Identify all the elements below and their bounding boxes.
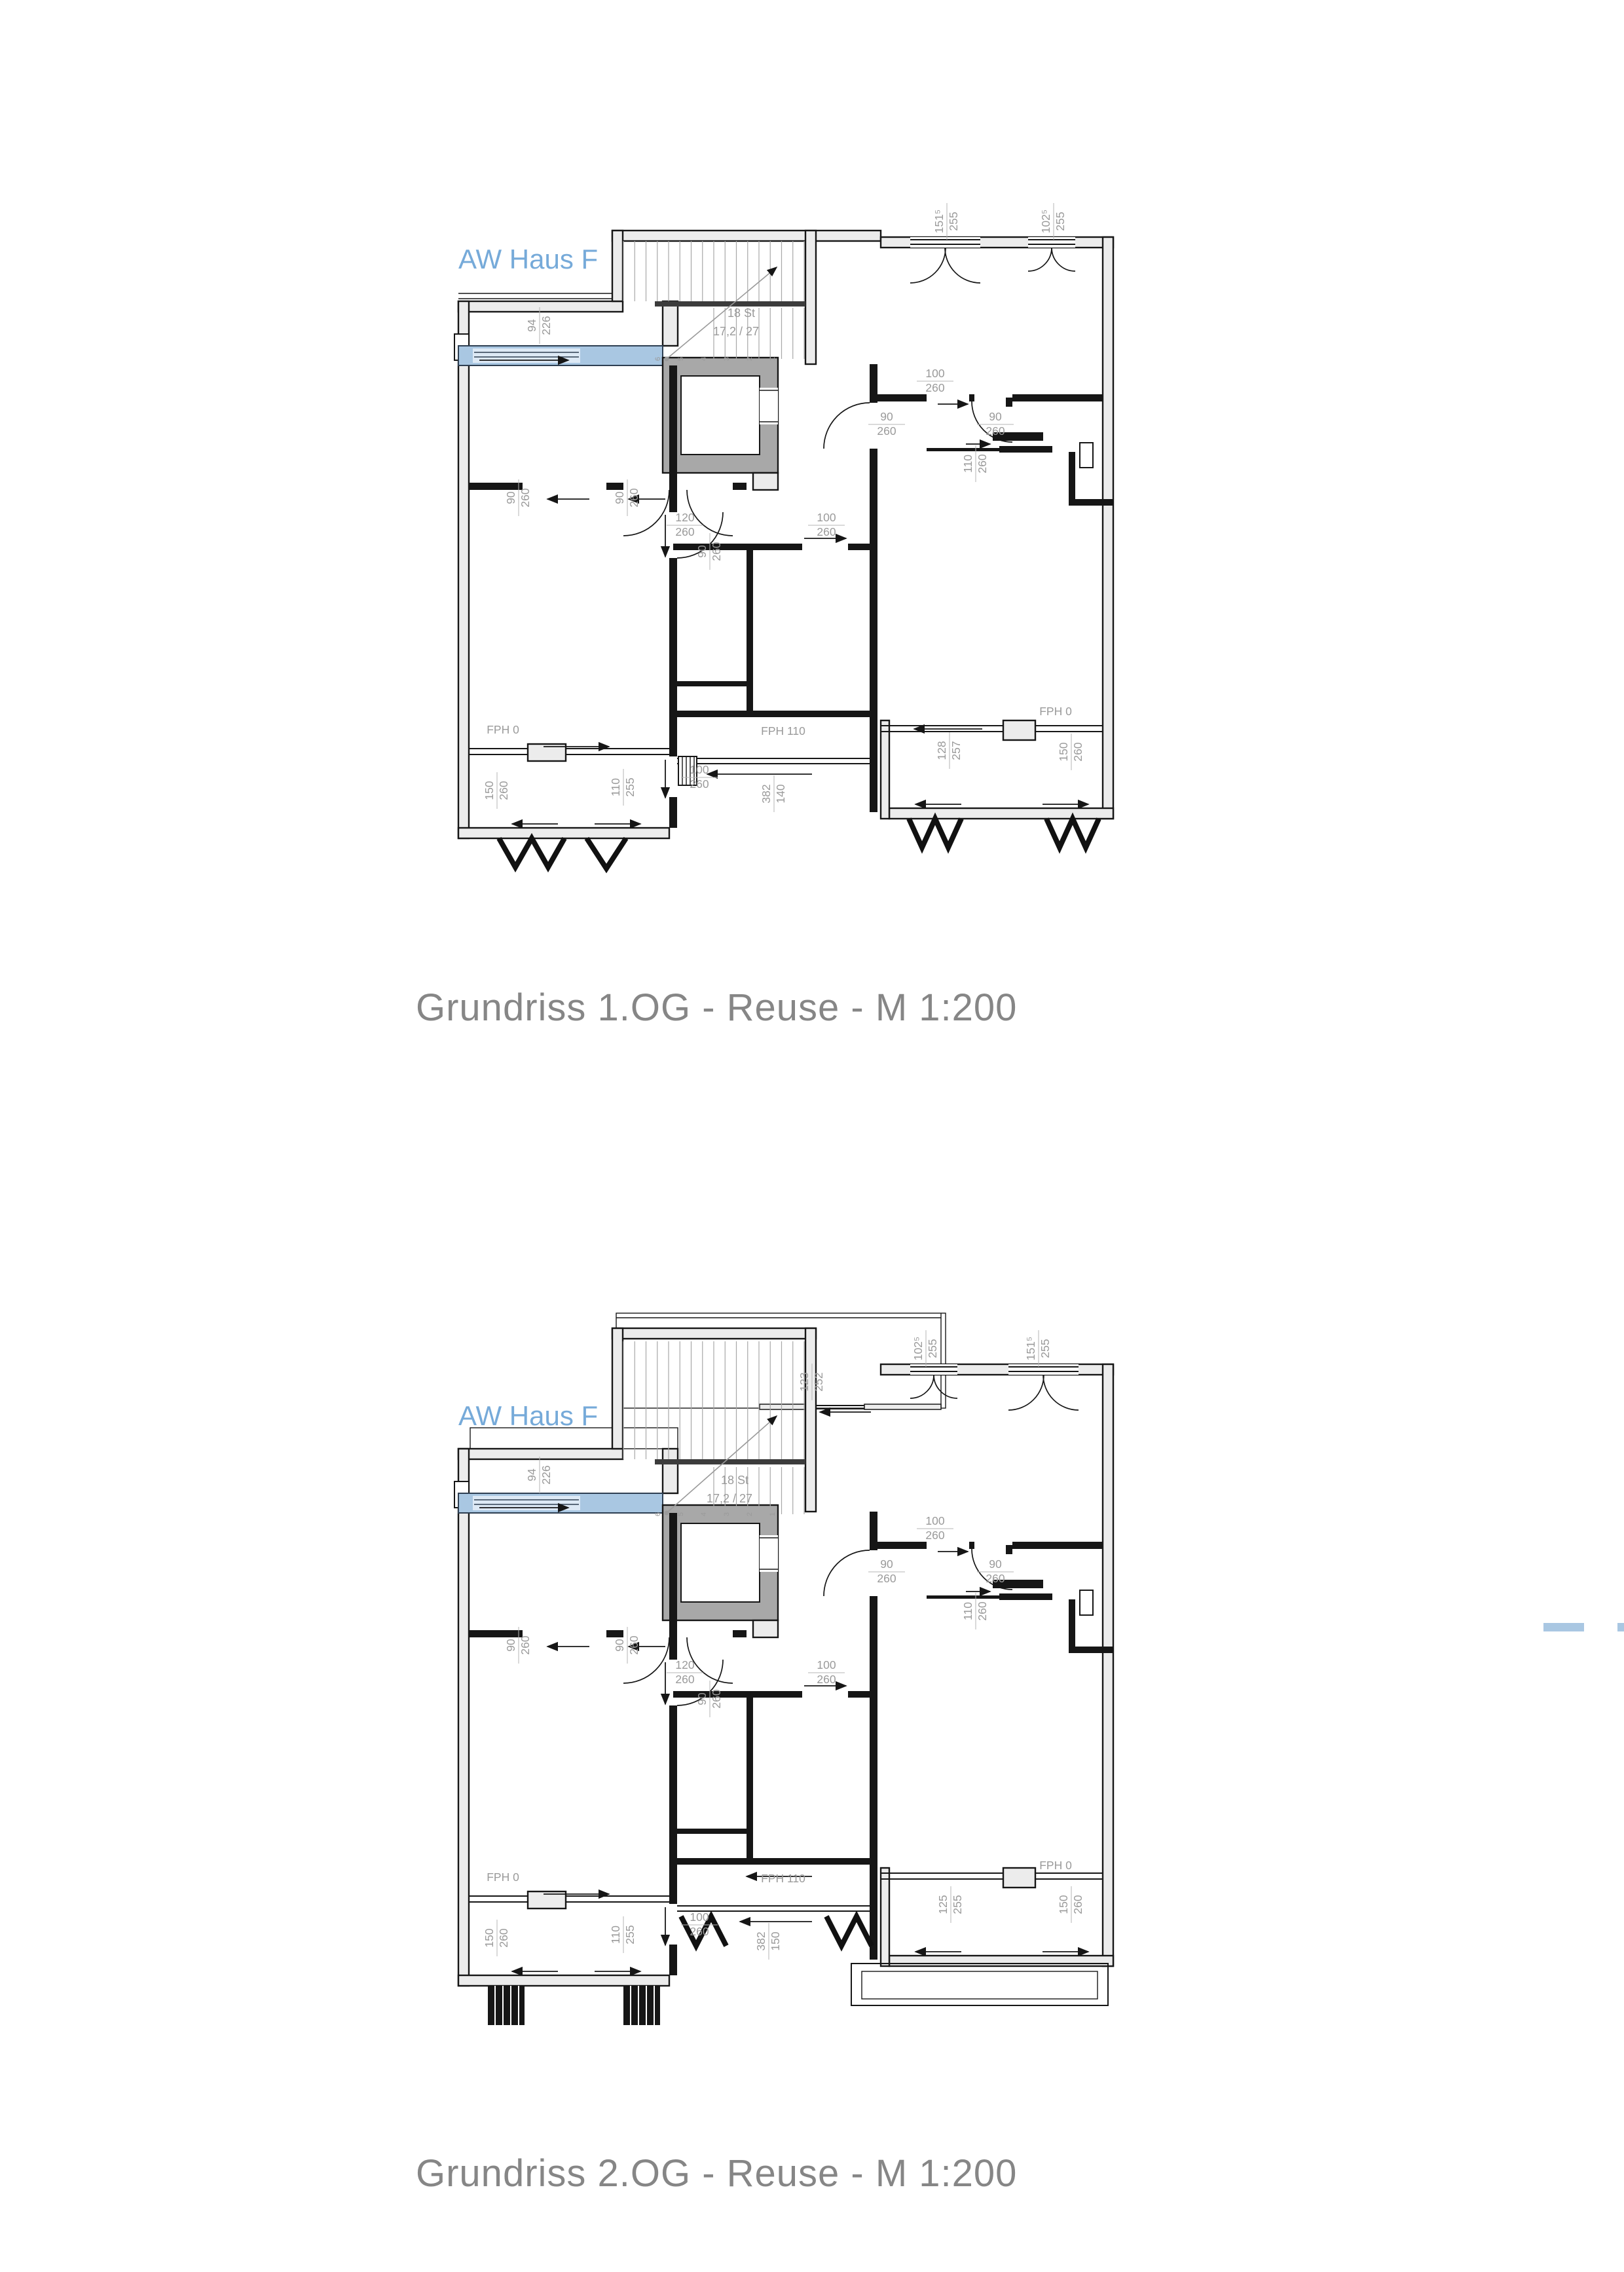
svg-text:FPH 0: FPH 0 xyxy=(1039,705,1072,718)
svg-text:255: 255 xyxy=(951,1895,964,1914)
direction-arrows xyxy=(512,1552,1088,1971)
svg-text:260: 260 xyxy=(627,1635,640,1654)
svg-text:255: 255 xyxy=(1054,212,1067,231)
svg-text:382: 382 xyxy=(760,784,773,803)
dim-label: 120260 xyxy=(667,511,703,538)
dim-label: 18 St xyxy=(721,1474,748,1487)
elevator-core xyxy=(663,1505,778,1637)
dim-label: FPH 110 xyxy=(761,1872,805,1885)
svg-text:17,2 / 27: 17,2 / 27 xyxy=(713,325,759,338)
stair-treads xyxy=(623,241,805,359)
svg-text:FPH 110: FPH 110 xyxy=(761,724,805,737)
svg-text:260: 260 xyxy=(497,781,510,800)
svg-text:100: 100 xyxy=(690,1910,709,1924)
highlight-wall xyxy=(458,1493,663,1513)
svg-text:94: 94 xyxy=(525,319,538,332)
staircase xyxy=(623,1341,805,1516)
svg-text:5: 5 xyxy=(677,357,685,361)
tread-number: 3 xyxy=(723,357,731,361)
dim-label: 151⁵255 xyxy=(932,203,960,240)
tread-number: 1 xyxy=(769,1512,777,1516)
page-edge-marker xyxy=(1543,1623,1584,1631)
dim-label: 150260 xyxy=(1057,1886,1084,1923)
highlight-wall xyxy=(458,346,663,365)
svg-text:100: 100 xyxy=(925,367,944,380)
svg-text:252: 252 xyxy=(812,1372,825,1391)
floorplan-2og: 123252942269026090260150260110255FPH 012… xyxy=(432,1284,1166,2070)
svg-text:100: 100 xyxy=(817,511,836,524)
svg-text:226: 226 xyxy=(540,316,553,335)
tread-number: 5 xyxy=(677,357,685,361)
tread-number: 3 xyxy=(723,1512,731,1516)
svg-text:2: 2 xyxy=(746,1512,754,1516)
svg-text:94: 94 xyxy=(525,1468,538,1481)
svg-text:255: 255 xyxy=(623,1925,637,1944)
dim-label: 90260 xyxy=(695,533,723,570)
balcony xyxy=(851,1964,1108,2005)
svg-text:260: 260 xyxy=(817,525,836,538)
tread-number: 4 xyxy=(700,357,708,361)
windows xyxy=(469,1364,1103,1911)
dim-label: 110255 xyxy=(609,1916,637,1953)
svg-text:150: 150 xyxy=(1057,742,1070,761)
tread-number: 2 xyxy=(746,357,754,361)
page-edge-marker xyxy=(1617,1623,1624,1631)
dim-label: FPH 110 xyxy=(761,724,805,737)
staircase xyxy=(623,241,805,362)
svg-text:90: 90 xyxy=(989,410,1002,423)
svg-text:17,2 / 27: 17,2 / 27 xyxy=(707,1492,752,1505)
svg-text:4: 4 xyxy=(700,1512,708,1516)
svg-text:110: 110 xyxy=(961,1602,974,1620)
svg-text:260: 260 xyxy=(519,1635,532,1654)
dim-label: 100260 xyxy=(917,1514,953,1542)
dim-label: FPH 0 xyxy=(1039,1859,1072,1872)
svg-text:120: 120 xyxy=(675,1658,694,1671)
svg-text:90: 90 xyxy=(880,410,893,423)
svg-text:18 St: 18 St xyxy=(728,307,755,320)
caption-2og: Grundriss 2.OG - Reuse - M 1:200 xyxy=(416,2151,1017,2195)
svg-text:255: 255 xyxy=(623,777,637,796)
svg-text:260: 260 xyxy=(627,488,640,507)
dim-label: 382150 xyxy=(754,1923,782,1960)
svg-text:151⁵: 151⁵ xyxy=(932,210,946,233)
svg-text:255: 255 xyxy=(926,1339,939,1358)
svg-text:1: 1 xyxy=(769,357,777,361)
svg-text:125: 125 xyxy=(936,1895,950,1914)
tread-number: 6 xyxy=(654,1512,662,1516)
floorplan-1og: 942269026090260150260110255FPH 012026090… xyxy=(432,196,1166,930)
svg-text:260: 260 xyxy=(497,1928,510,1947)
svg-text:260: 260 xyxy=(690,777,709,791)
svg-text:260: 260 xyxy=(877,424,896,438)
svg-text:382: 382 xyxy=(754,1931,767,1950)
svg-text:FPH 110: FPH 110 xyxy=(761,1872,805,1885)
svg-text:260: 260 xyxy=(690,1925,709,1938)
svg-text:260: 260 xyxy=(986,1572,1005,1585)
svg-text:100: 100 xyxy=(690,763,709,776)
svg-text:110: 110 xyxy=(609,778,622,796)
dim-label: 100260 xyxy=(808,1658,845,1686)
dim-label: 90260 xyxy=(695,1681,723,1717)
svg-text:151⁵: 151⁵ xyxy=(1024,1337,1037,1360)
dim-label: 151⁵255 xyxy=(1024,1330,1052,1367)
dim-label: 150260 xyxy=(1057,734,1084,770)
svg-text:102⁵: 102⁵ xyxy=(1039,210,1052,233)
svg-text:260: 260 xyxy=(817,1673,836,1686)
dim-label: FPH 0 xyxy=(487,723,519,736)
svg-text:260: 260 xyxy=(710,1689,723,1708)
svg-text:90: 90 xyxy=(989,1557,1002,1571)
svg-text:260: 260 xyxy=(675,525,694,538)
dimension-labels: 123252942269026090260150260110255FPH 012… xyxy=(483,1330,1084,1960)
svg-text:257: 257 xyxy=(950,741,963,760)
shutter-symbols xyxy=(499,819,1099,868)
svg-text:4: 4 xyxy=(700,357,708,361)
svg-text:102⁵: 102⁵ xyxy=(912,1337,925,1360)
svg-text:FPH 0: FPH 0 xyxy=(487,723,519,736)
svg-text:5: 5 xyxy=(677,1512,685,1516)
dim-label: 102⁵255 xyxy=(912,1330,939,1367)
svg-text:90: 90 xyxy=(504,491,517,504)
svg-text:226: 226 xyxy=(540,1465,553,1484)
dim-label: 110255 xyxy=(609,769,637,806)
svg-text:6: 6 xyxy=(654,357,662,361)
svg-text:3: 3 xyxy=(723,1512,731,1516)
dim-label: 128257 xyxy=(935,732,963,769)
svg-text:150: 150 xyxy=(483,781,496,800)
svg-text:1: 1 xyxy=(769,1512,777,1516)
svg-text:260: 260 xyxy=(1071,1895,1084,1914)
dim-label: 102⁵255 xyxy=(1039,203,1067,240)
svg-text:90: 90 xyxy=(695,545,709,558)
dim-label: 125255 xyxy=(936,1886,964,1923)
svg-text:260: 260 xyxy=(976,454,989,473)
svg-text:255: 255 xyxy=(947,212,960,231)
svg-text:150: 150 xyxy=(769,1931,782,1950)
svg-text:123: 123 xyxy=(798,1372,811,1391)
dim-label: 90260 xyxy=(868,410,905,438)
svg-text:150: 150 xyxy=(483,1928,496,1947)
svg-text:120: 120 xyxy=(675,511,694,524)
elevator-core xyxy=(663,358,778,490)
tread-number: 4 xyxy=(700,1512,708,1516)
dim-label: 94226 xyxy=(525,307,553,344)
svg-text:260: 260 xyxy=(986,424,1005,438)
tread-number: 2 xyxy=(746,1512,754,1516)
support-piers xyxy=(488,1986,660,2025)
caption-1og: Grundriss 1.OG - Reuse - M 1:200 xyxy=(416,986,1017,1030)
svg-text:140: 140 xyxy=(774,784,787,803)
svg-text:260: 260 xyxy=(675,1673,694,1686)
svg-text:100: 100 xyxy=(925,1514,944,1527)
svg-text:FPH 0: FPH 0 xyxy=(487,1871,519,1884)
svg-text:260: 260 xyxy=(925,1529,944,1542)
svg-text:260: 260 xyxy=(877,1572,896,1585)
svg-text:260: 260 xyxy=(1071,742,1084,761)
svg-text:6: 6 xyxy=(654,1512,662,1516)
dim-label: 90260 xyxy=(868,1557,905,1585)
svg-text:255: 255 xyxy=(1039,1339,1052,1358)
svg-text:260: 260 xyxy=(925,381,944,394)
svg-text:90: 90 xyxy=(695,1692,709,1705)
svg-text:18 St: 18 St xyxy=(721,1474,748,1487)
svg-text:FPH 0: FPH 0 xyxy=(1039,1859,1072,1872)
svg-text:260: 260 xyxy=(710,542,723,561)
svg-text:90: 90 xyxy=(880,1557,893,1571)
svg-text:128: 128 xyxy=(935,741,948,760)
plan-sheet: AW Haus F AW Haus F xyxy=(0,0,1624,2272)
dim-label: 100260 xyxy=(808,511,845,538)
svg-text:110: 110 xyxy=(961,455,974,473)
dim-label: FPH 0 xyxy=(487,1871,519,1884)
dim-label: 18 St xyxy=(728,307,755,320)
svg-text:90: 90 xyxy=(613,1639,626,1652)
svg-text:150: 150 xyxy=(1057,1895,1070,1914)
dimension-labels: 942269026090260150260110255FPH 012026090… xyxy=(483,203,1084,812)
direction-arrows xyxy=(512,404,1088,824)
dim-label: 150260 xyxy=(483,1920,510,1956)
dim-label: 150260 xyxy=(483,772,510,809)
tread-number: 5 xyxy=(677,1512,685,1516)
dim-label: 120260 xyxy=(667,1658,703,1686)
svg-text:110: 110 xyxy=(609,1926,622,1944)
dim-label: 100260 xyxy=(917,367,953,394)
dim-label: 17,2 / 27 xyxy=(713,325,759,338)
svg-text:2: 2 xyxy=(746,357,754,361)
dim-label: 382140 xyxy=(760,775,787,812)
svg-text:260: 260 xyxy=(976,1601,989,1620)
svg-text:90: 90 xyxy=(504,1639,517,1652)
dim-label: FPH 0 xyxy=(1039,705,1072,718)
svg-text:90: 90 xyxy=(613,491,626,504)
svg-text:100: 100 xyxy=(817,1658,836,1671)
tread-number: 1 xyxy=(769,357,777,361)
svg-text:3: 3 xyxy=(723,357,731,361)
windows xyxy=(469,237,1103,785)
dim-label: 17,2 / 27 xyxy=(707,1492,752,1505)
svg-text:260: 260 xyxy=(519,488,532,507)
tread-number: 6 xyxy=(654,357,662,361)
dim-label: 94226 xyxy=(525,1457,553,1493)
